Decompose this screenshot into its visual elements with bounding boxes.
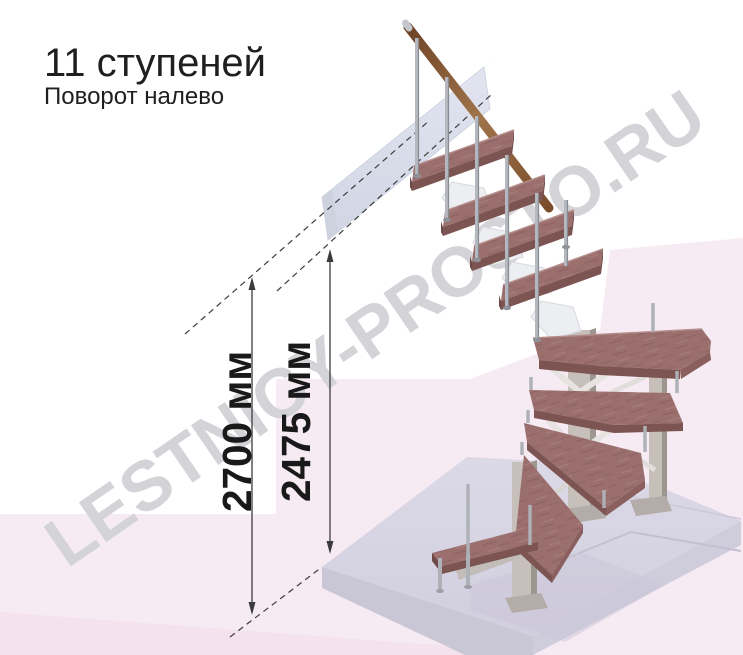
svg-text:2700 мм: 2700 мм xyxy=(214,351,260,512)
svg-text:2475 мм: 2475 мм xyxy=(273,341,319,502)
svg-text:11 ступеней: 11 ступеней xyxy=(44,41,266,85)
svg-text:Поворот налево: Поворот налево xyxy=(44,83,224,110)
